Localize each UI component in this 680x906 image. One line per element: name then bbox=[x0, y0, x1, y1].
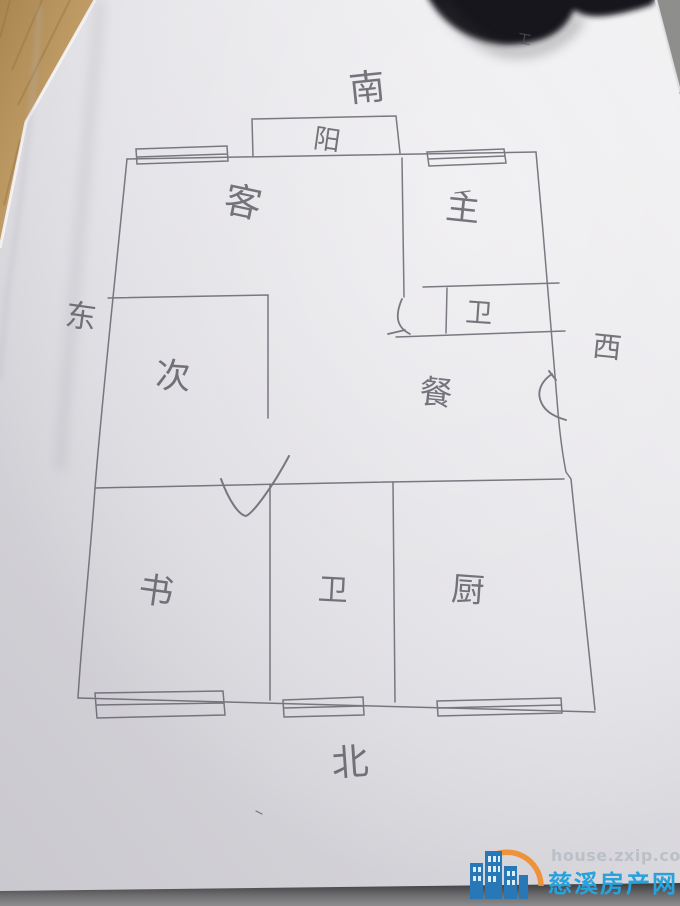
floorplan-sketch: 南 阳 客 主 卫 东 西 次 餐 书 卫 厨 北 工 bbox=[0, 0, 680, 906]
label-study: 书 bbox=[136, 570, 176, 614]
label-west: 西 bbox=[591, 329, 623, 366]
floorplan-photo: 南 阳 客 主 卫 东 西 次 餐 书 卫 厨 北 工 bbox=[0, 0, 680, 906]
label-south: 南 bbox=[347, 66, 387, 111]
label-second: 次 bbox=[154, 356, 192, 398]
label-dining: 餐 bbox=[417, 371, 454, 413]
label-bath-lower: 卫 bbox=[317, 572, 349, 609]
label-master: 主 bbox=[444, 187, 482, 230]
label-kitchen: 厨 bbox=[450, 569, 486, 610]
label-bath-upper: 卫 bbox=[464, 297, 493, 330]
watermark-site-url: house.zxip.com bbox=[551, 846, 680, 865]
label-north: 北 bbox=[330, 740, 370, 785]
label-east: 东 bbox=[63, 297, 99, 337]
watermark-site-name: 慈溪房产网 bbox=[548, 870, 678, 898]
label-scribble: 工 bbox=[516, 31, 533, 49]
label-balcony: 阳 bbox=[311, 123, 342, 157]
watermark: house.zxip.com 慈溪房产网 bbox=[470, 846, 680, 899]
